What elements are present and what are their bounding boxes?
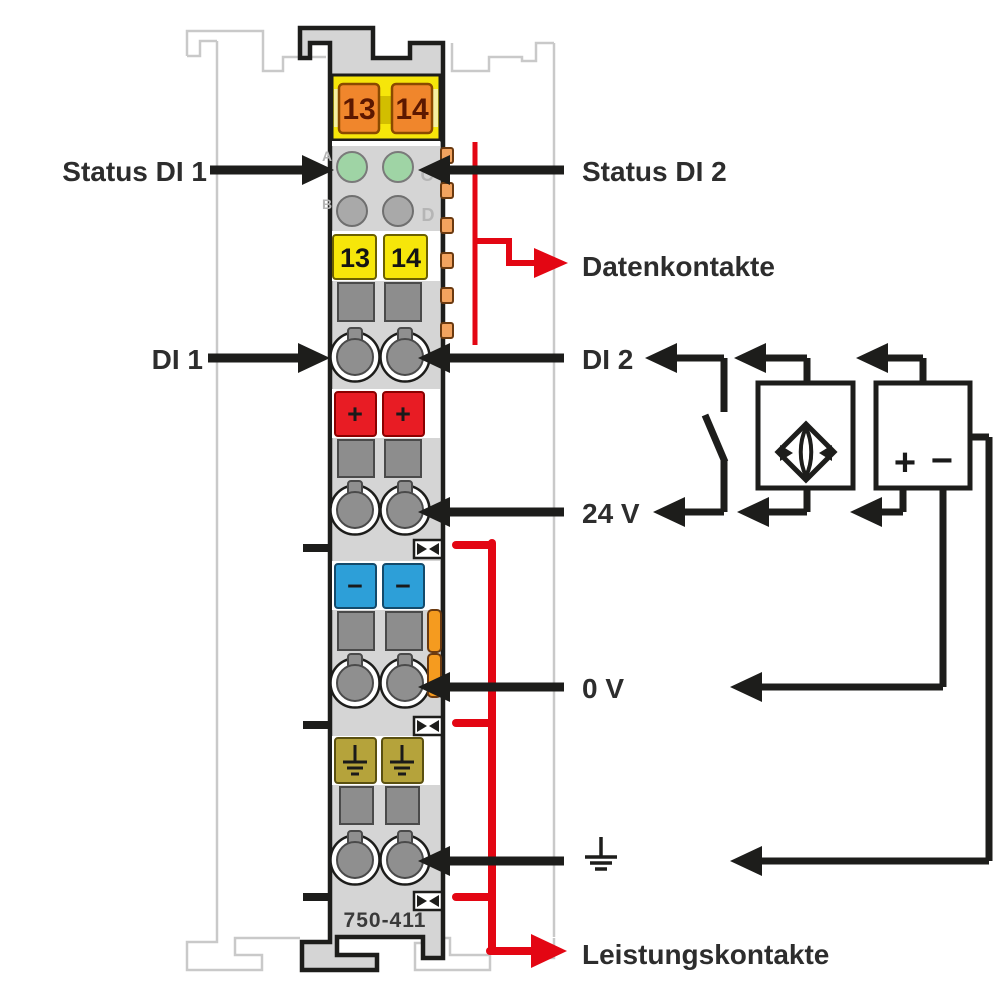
bowtie-contact-icon [414,540,442,558]
led-b-gray [337,196,367,226]
psu-minus-sign: − [931,440,953,482]
leistungskontakte-arrowhead-icon [531,934,567,968]
label-status-di1: Status DI 1 [62,156,207,187]
ghost-right-top [452,43,554,71]
wiring-diagram-750-411: 13 14 A B C D 13 14 [0,0,1000,1000]
plus-terminal-1-sign: + [347,399,363,429]
label-status-di2: Status DI 2 [582,156,727,187]
datenkontakte-arrowhead-icon [534,248,568,278]
bowtie-contact-icon [414,717,442,735]
datenkontakte-branch [475,241,538,263]
bowtie-contact-icon [414,892,442,910]
minus-terminal-2-sign: − [395,571,411,601]
proximity-sensor-icon [758,383,853,488]
label-leistungskontakte: Leistungskontakte [582,939,829,970]
led-d-gray [383,196,413,226]
module-part-number: 750-411 [344,909,427,932]
header-separator [332,141,440,146]
power-supply-icon: + − [876,383,970,488]
mid-terminal-14-label: 14 [391,243,421,273]
minus-terminal-1-sign: − [347,571,363,601]
top-terminal-14-label: 14 [395,93,429,126]
label-datenkontakte: Datenkontakte [582,251,775,282]
led-di2-green [383,152,413,182]
top-terminal-13-label: 13 [342,93,375,126]
led-letter-b: B [322,196,332,212]
ghost-left-hook [187,41,217,56]
switch-blade [705,415,725,462]
leistungskontakte-marker [456,543,533,951]
earth-ground-icon [585,837,617,869]
label-di2: DI 2 [582,344,633,375]
label-di1: DI 1 [152,344,203,375]
led-di1-green [337,152,367,182]
psu-plus-sign: + [894,442,916,484]
led-letter-d: D [422,205,435,225]
left-edge-ticks [303,544,331,901]
ghost-left-foot [187,937,300,970]
plus-terminal-2-sign: + [395,399,411,429]
led-letter-a: A [322,148,332,164]
mid-terminal-13-label: 13 [340,243,370,273]
label-24v: 24 V [582,498,640,529]
label-0v: 0 V [582,673,624,704]
